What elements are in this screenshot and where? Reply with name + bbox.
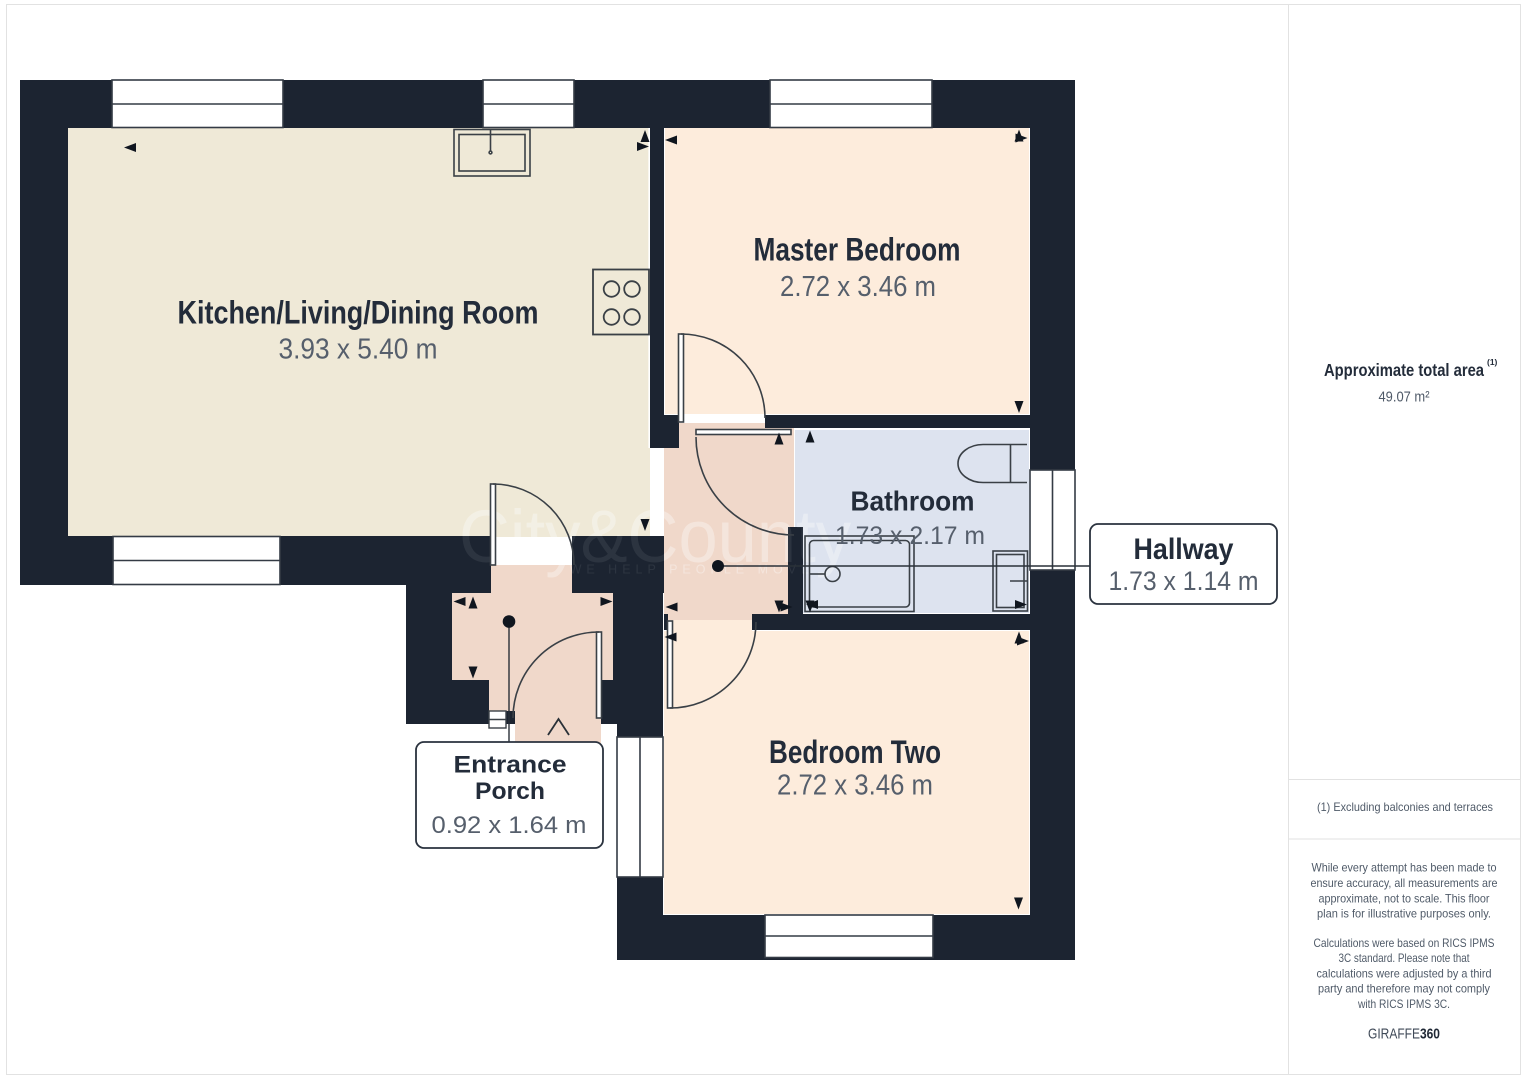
svg-text:Porch: Porch (475, 778, 545, 805)
svg-text:Kitchen/Living/Dining Room: Kitchen/Living/Dining Room (178, 295, 539, 331)
svg-text:2.72 x 3.46 m: 2.72 x 3.46 m (777, 770, 933, 802)
svg-text:plan is for illustrative purpo: plan is for illustrative purposes only. (1317, 907, 1491, 921)
svg-text:1.73 x 1.14 m: 1.73 x 1.14 m (1109, 566, 1259, 596)
svg-text:GIRAFFE360: GIRAFFE360 (1368, 1027, 1440, 1043)
svg-text:3.93 x 5.40 m: 3.93 x 5.40 m (279, 334, 438, 366)
svg-text:3C standard. Please note that: 3C standard. Please note that (1339, 951, 1471, 965)
svg-text:0.92 x 1.64 m: 0.92 x 1.64 m (432, 812, 587, 839)
svg-text:(1) Excluding balconies and te: (1) Excluding balconies and terraces (1317, 800, 1493, 814)
svg-text:Entrance: Entrance (454, 752, 567, 779)
svg-text:Hallway: Hallway (1134, 533, 1234, 566)
svg-text:(1): (1) (1487, 357, 1498, 367)
svg-text:ensure accuracy, all measureme: ensure accuracy, all measurements are (1311, 876, 1498, 890)
svg-text:Bedroom Two: Bedroom Two (769, 734, 941, 770)
svg-text:Approximate total area: Approximate total area (1324, 360, 1484, 380)
svg-text:While every attempt has been m: While every attempt has been made to (1312, 861, 1497, 875)
svg-text:calculations were adjusted by: calculations were adjusted by a third (1317, 966, 1492, 980)
svg-text:2.72 x 3.46 m: 2.72 x 3.46 m (780, 271, 936, 303)
svg-text:approximate, not to scale. Thi: approximate, not to scale. This floor (1319, 891, 1490, 905)
svg-text:with RICS IPMS 3C.: with RICS IPMS 3C. (1357, 997, 1450, 1011)
svg-text:1.73 x 2.17 m: 1.73 x 2.17 m (835, 522, 985, 550)
svg-text:Bathroom: Bathroom (851, 486, 975, 517)
svg-text:49.07 m²: 49.07 m² (1379, 389, 1430, 406)
svg-text:Calculations were based on RIC: Calculations were based on RICS IPMS (1314, 936, 1495, 950)
svg-text:party and therefore may not co: party and therefore may not comply (1318, 982, 1490, 996)
svg-text:Master Bedroom: Master Bedroom (754, 232, 961, 268)
svg-text:WE HELP PEOPLE MOVE: WE HELP PEOPLE MOVE (570, 563, 815, 577)
